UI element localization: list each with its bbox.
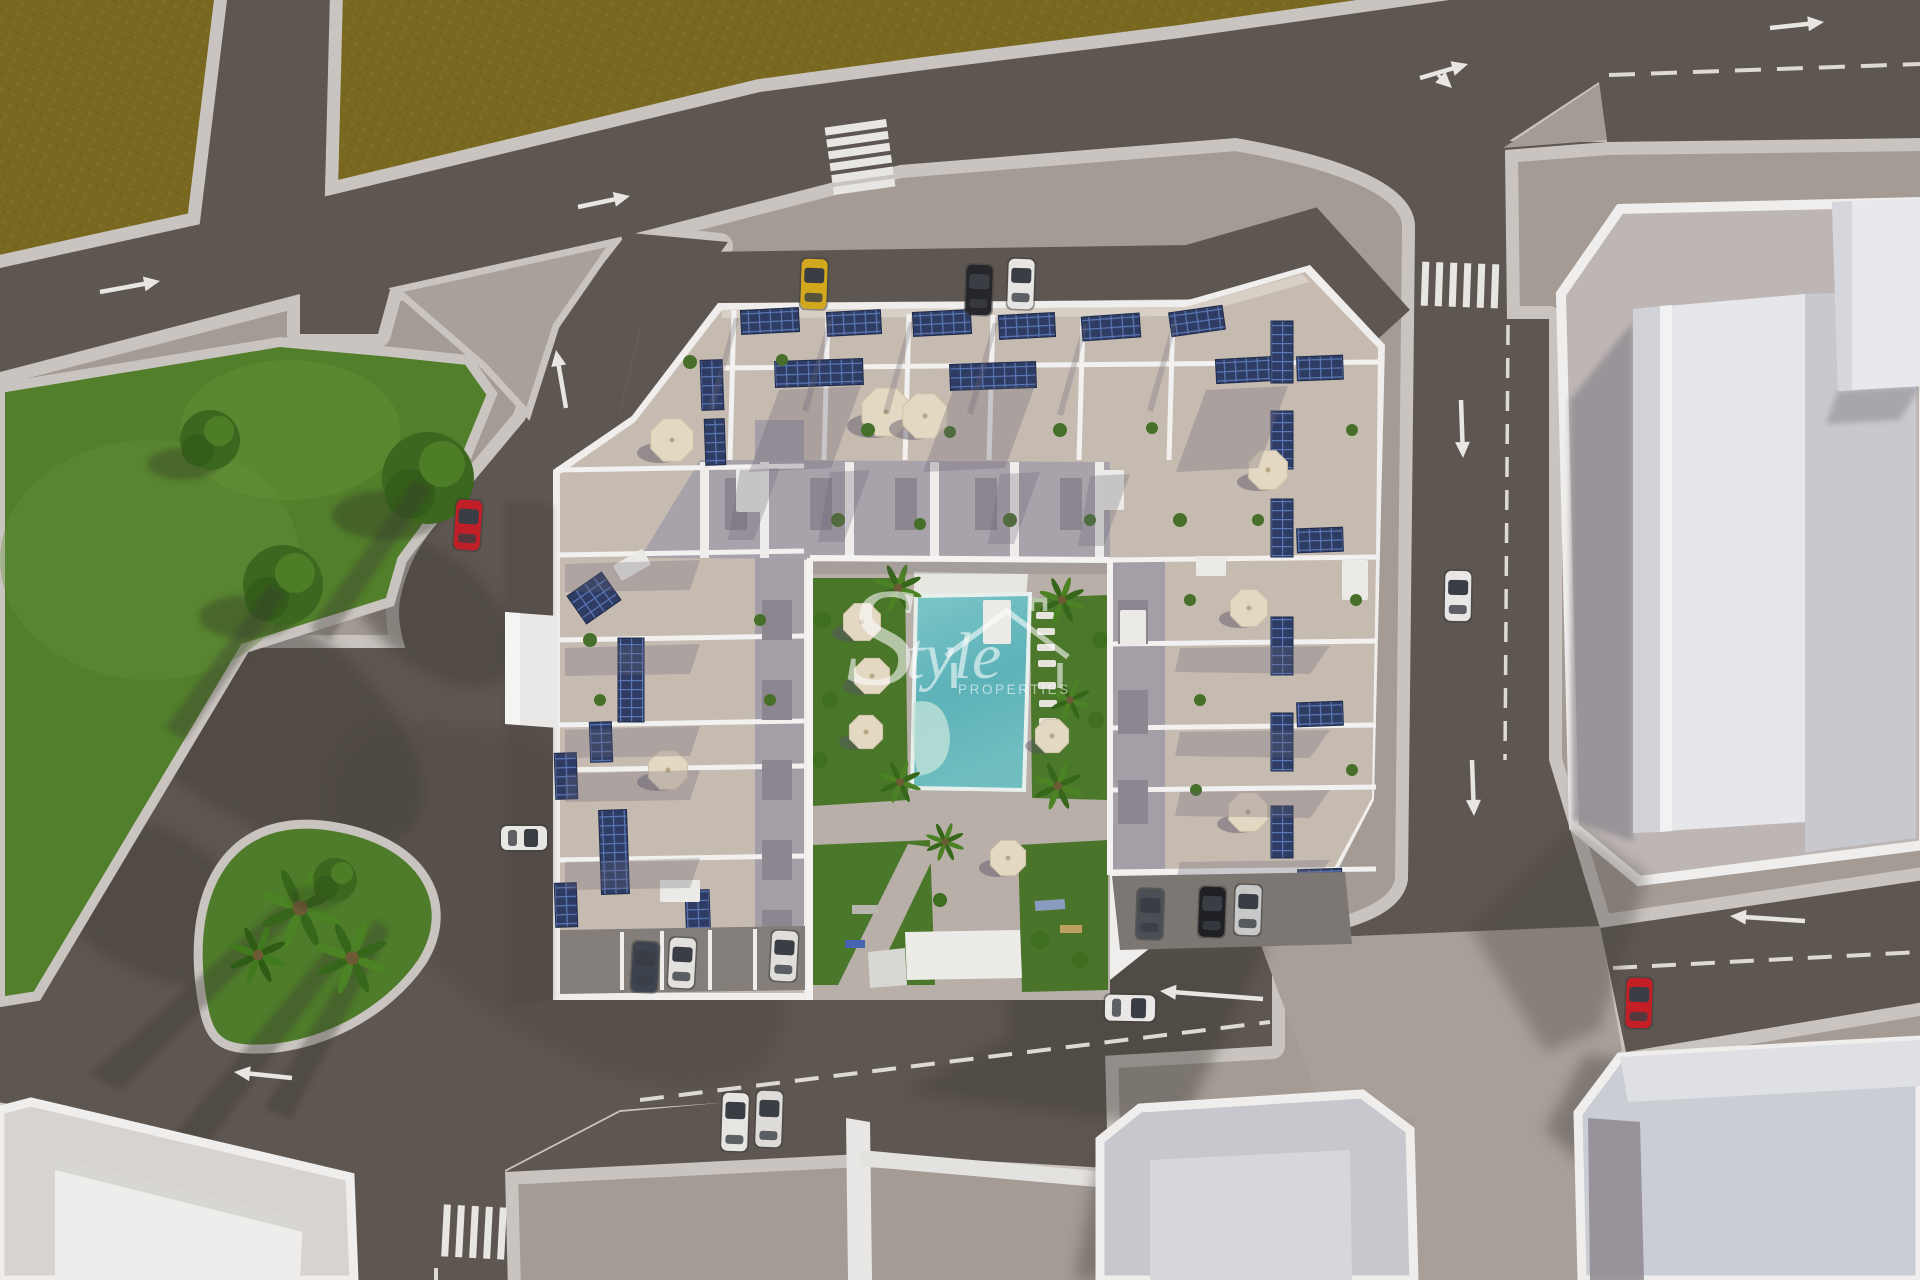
- svg-text:PROPERTIES: PROPERTIES: [958, 682, 1071, 697]
